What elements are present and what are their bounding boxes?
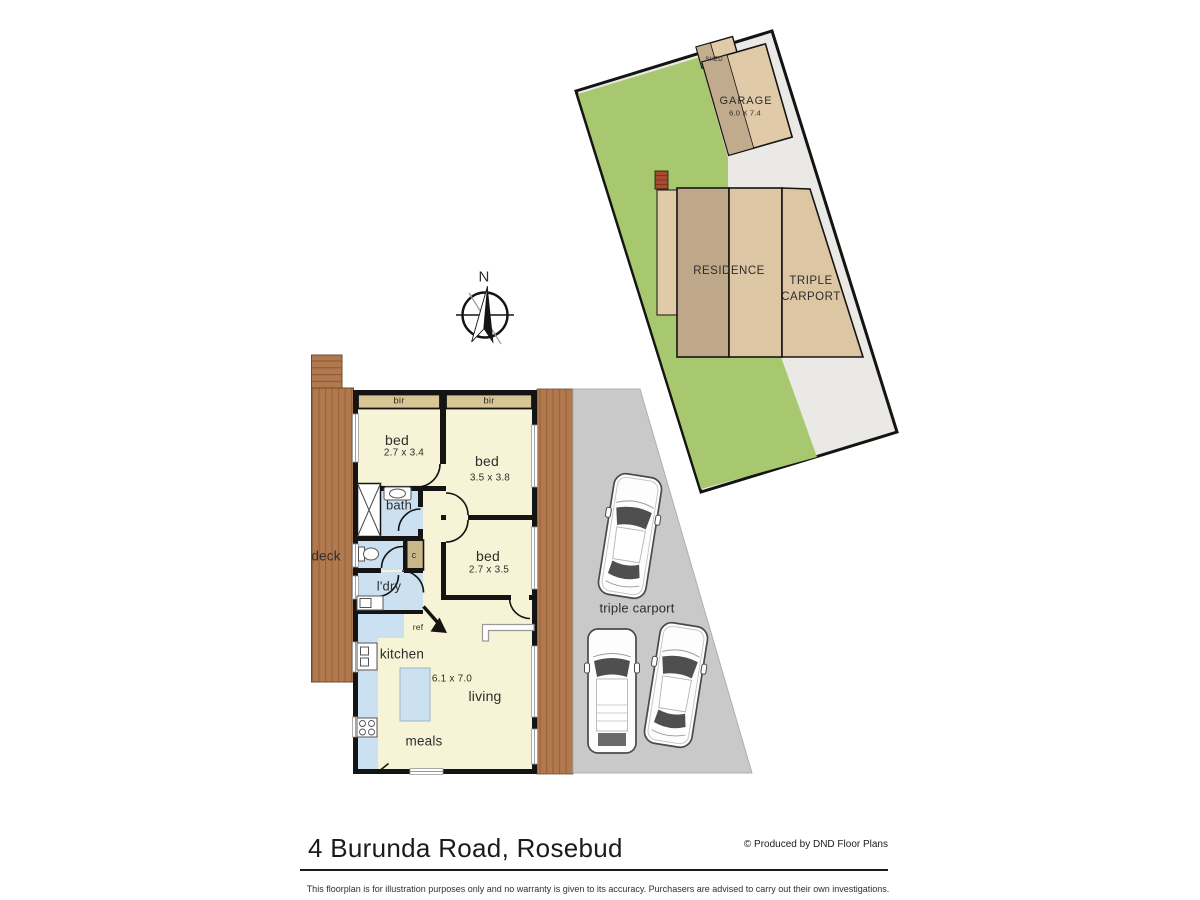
compass-north-label: N <box>478 269 489 286</box>
deck-label: deck <box>311 549 340 564</box>
plan-graphic <box>0 0 1200 900</box>
bed3-dim-label: 2.7 x 3.5 <box>469 565 509 576</box>
compass-icon <box>456 285 514 344</box>
carport-label: triple carport <box>599 601 674 616</box>
kitchen-label: kitchen <box>380 647 424 662</box>
site-carport-label-line1: TRIPLE <box>789 275 832 287</box>
kitchen-island <box>400 668 430 721</box>
title-divider <box>300 869 888 871</box>
car-icon <box>585 629 640 753</box>
credit-text: © Produced by DND Floor Plans <box>744 839 888 850</box>
bed1-label: bed <box>385 432 409 448</box>
meals-label: meals <box>405 734 442 749</box>
robe-label: bir <box>393 396 404 407</box>
fridge-label: ref <box>413 622 424 632</box>
bed1-dim-label: 2.7 x 3.4 <box>384 448 424 459</box>
bed2-dim-label: 3.5 x 3.8 <box>470 473 510 484</box>
site-brick-pier <box>655 171 668 189</box>
site-residence-wing <box>657 190 677 315</box>
robe-label: bir <box>483 396 494 407</box>
laundry-label: l'dry <box>377 579 401 594</box>
bath-label: bath <box>386 498 412 513</box>
shed-label: SHED <box>705 57 722 63</box>
floorplan-page: SHED GARAGE 6.0 X 7.4 RESIDENCE TRIPLE C… <box>0 0 1200 900</box>
shower-icon <box>358 484 381 537</box>
page-title: 4 Burunda Road, Rosebud <box>308 833 623 864</box>
toilet-icon <box>359 547 379 561</box>
bed3-label: bed <box>476 548 500 564</box>
site-carport-label-line2: CARPORT <box>781 291 841 303</box>
living-label: living <box>468 688 501 704</box>
living-dim-label: 6.1 x 7.0 <box>432 674 472 685</box>
oven-icon <box>357 643 377 670</box>
bed2-label: bed <box>475 453 499 469</box>
deck-right <box>537 389 573 774</box>
garage-label: GARAGE <box>719 95 772 107</box>
disclaimer-text: This floorplan is for illustration purpo… <box>300 884 896 894</box>
stove-icon <box>357 718 377 737</box>
deck-stairs <box>312 355 343 388</box>
residence-label: RESIDENCE <box>693 265 765 277</box>
garage-dim-label: 6.0 X 7.4 <box>729 109 761 118</box>
laundry-trough-icon <box>357 596 383 610</box>
cupboard-label: c <box>412 550 417 560</box>
deck-left <box>312 388 354 682</box>
